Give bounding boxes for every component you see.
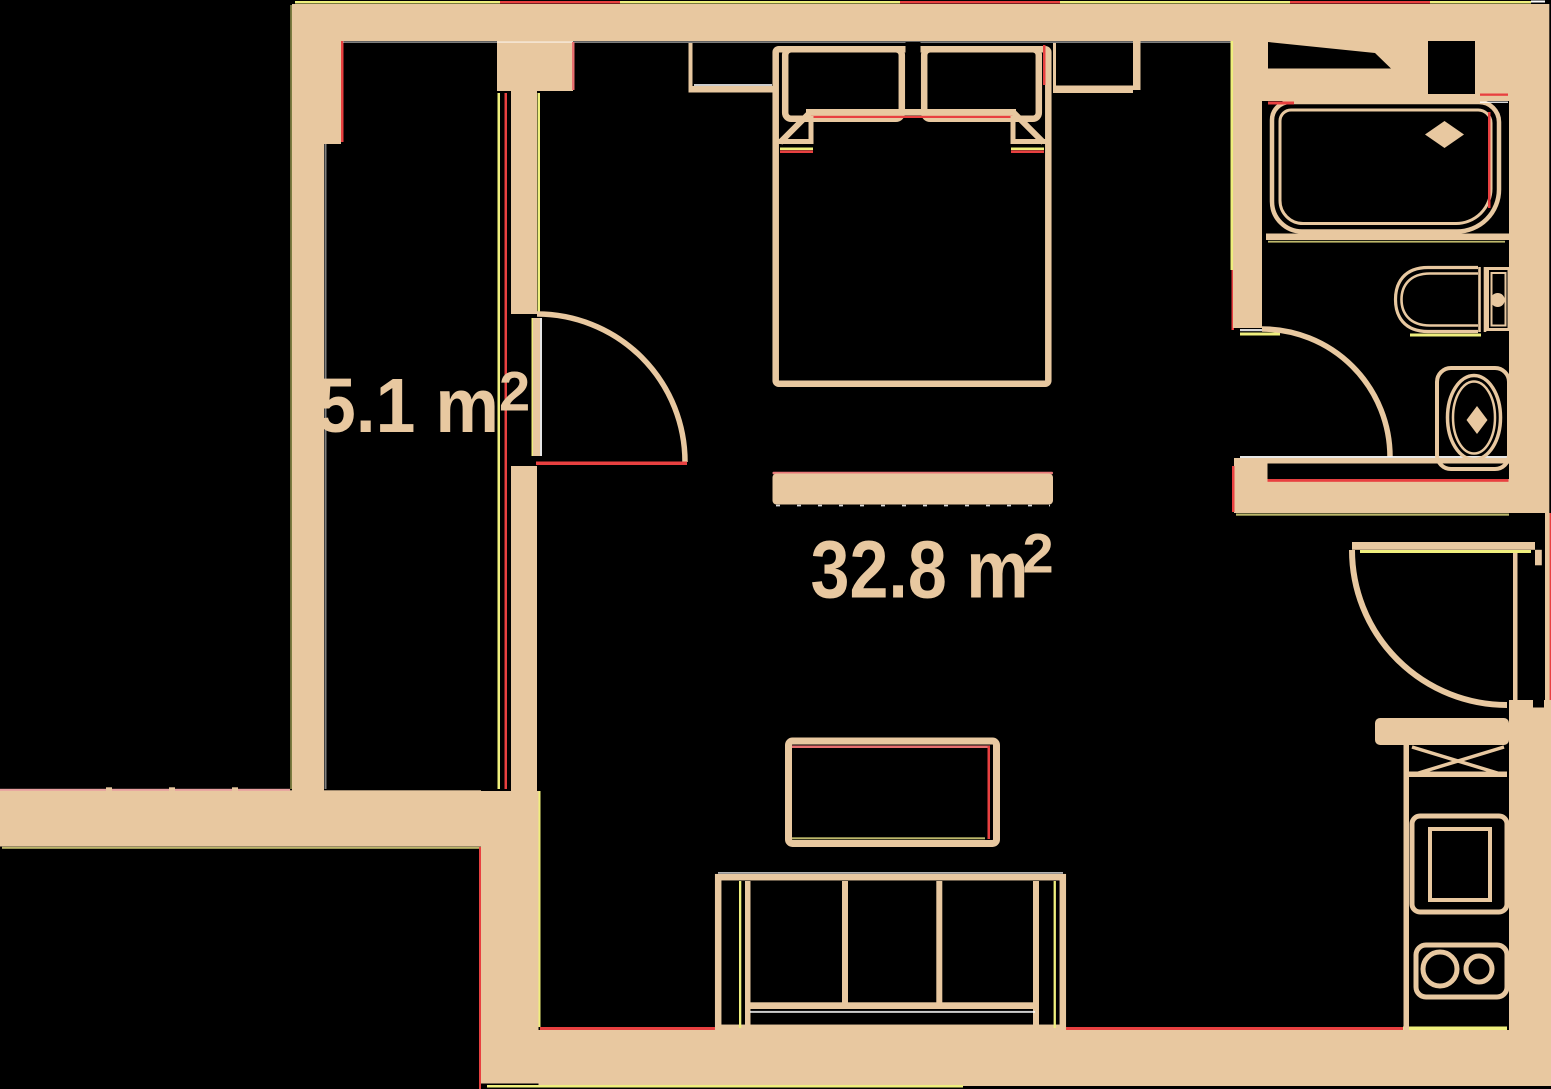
svg-text:32.8 m: 32.8 m (811, 525, 1029, 616)
svg-text:5.1 m: 5.1 m (316, 363, 499, 449)
svg-text:2: 2 (499, 359, 530, 422)
svg-text:2: 2 (1023, 521, 1054, 584)
